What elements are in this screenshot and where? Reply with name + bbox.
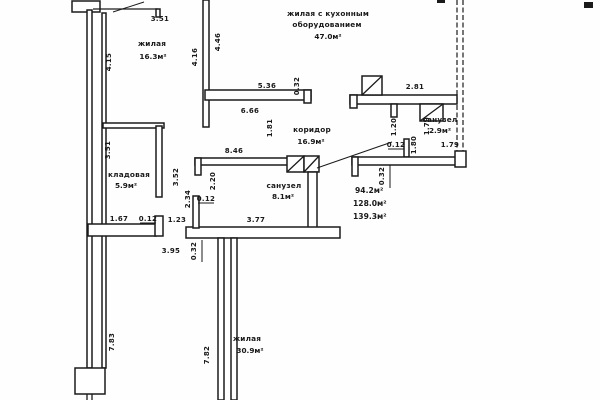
wall-stub — [391, 104, 397, 117]
door-vent-icon — [304, 156, 319, 172]
dim-179-v: 1.79 — [423, 117, 431, 135]
dim-181: 1.81 — [266, 119, 274, 137]
bottom-thick-wall — [186, 227, 340, 238]
vent-shaft-icon — [362, 76, 382, 95]
bath-small-bottom-wall — [352, 157, 456, 165]
room-label-living-top: жилая — [138, 39, 166, 48]
dim-012-bath-small: 0.12 — [387, 141, 405, 149]
floor-plan: жилая 16.3м² жилая с кухонным оборудован… — [0, 0, 600, 400]
outer-wall-left — [87, 10, 92, 368]
bath-large-right-wall — [308, 172, 317, 228]
dim-782: 7.82 — [203, 346, 211, 364]
summary-line-1: 94.2м² — [355, 186, 383, 195]
dim-012-bath-large: 0.12 — [197, 195, 215, 203]
dim-377: 3.77 — [247, 216, 265, 224]
wall-281-endcap — [350, 95, 357, 108]
summary-line-3: 139.3м² — [353, 212, 387, 221]
dim-032-bottom-left: 0.32 — [190, 242, 198, 260]
scan-mark — [584, 2, 593, 8]
room-area-living-bottom: 30.9м² — [236, 346, 263, 355]
dim-666: 6.66 — [241, 107, 259, 115]
dim-234: 2.34 — [184, 190, 192, 208]
room-area-living-kitchen: 47.0м² — [314, 32, 341, 41]
dim-783: 7.83 — [108, 333, 116, 351]
dim-416: 4.16 — [191, 48, 199, 66]
dim-012-storage: 0.12 — [139, 215, 157, 223]
room-label-bath-large: санузел — [267, 181, 302, 190]
partition-living-kitchen — [203, 0, 209, 127]
floor-plan-canvas: жилая 16.3м² жилая с кухонным оборудован… — [0, 0, 600, 400]
scan-mark — [437, 0, 445, 3]
wall-kitchen-bottom-endcap — [304, 90, 311, 103]
section-marker-top — [72, 1, 100, 12]
dim-446: 4.46 — [214, 33, 222, 51]
room-area-living-top: 16.3м² — [139, 52, 166, 61]
door-vent-icon — [287, 156, 304, 172]
room-area-bath-large: 8.1м² — [272, 192, 294, 201]
dim-352: 3.52 — [172, 168, 180, 186]
room-label-living-kitchen-1: жилая с кухонным — [287, 9, 369, 18]
section-marker-bottom — [75, 368, 105, 394]
dim-220: 2.20 — [209, 172, 217, 190]
dim-536: 5.36 — [258, 82, 276, 90]
dim-395: 3.95 — [162, 247, 180, 255]
living-bottom-right-wall — [218, 238, 224, 400]
dim-032-bottom-right: 0.32 — [378, 167, 386, 185]
bath-small-bottom-wall-stub — [352, 157, 358, 176]
room-label-living-bottom: жилая — [233, 334, 261, 343]
room-area-bath-small: 2.9м² — [429, 126, 451, 135]
bath-small-bottom-endcap — [455, 151, 466, 167]
dim-179-h: 1.79 — [441, 141, 459, 149]
dim-415: 4.15 — [105, 53, 113, 71]
dim-180: 1.80 — [410, 136, 418, 154]
hall-wall-left-return — [195, 158, 201, 175]
room-label-storage: кладовая — [108, 170, 150, 179]
storage-top-wall — [103, 123, 164, 128]
dim-351-left: 3.51 — [104, 141, 112, 159]
room-area-corridor: 16.9м² — [297, 137, 324, 146]
hall-wall-846 — [195, 158, 291, 165]
living-bottom-right-wall-face — [231, 238, 237, 400]
room-area-storage: 5.9м² — [115, 181, 137, 190]
dim-846: 8.46 — [225, 147, 243, 155]
wall-281 — [350, 95, 457, 104]
dim-167: 1.67 — [110, 215, 128, 223]
storage-right-wall — [156, 126, 162, 197]
dim-120: 1.20 — [390, 118, 398, 136]
dim-281: 2.81 — [406, 83, 424, 91]
dim-123: 1.23 — [168, 216, 186, 224]
summary-line-2: 128.0м² — [353, 199, 387, 208]
room-label-living-kitchen-2: оборудованием — [292, 20, 361, 29]
leader-line-top — [113, 2, 144, 12]
dim-032-top: 0.32 — [293, 77, 301, 95]
storage-bottom-wall — [88, 224, 156, 236]
dim-351-top: 3.51 — [151, 15, 169, 23]
room-label-corridor: коридор — [293, 125, 331, 134]
area-summary: 94.2м² 128.0м² 139.3м² — [353, 186, 387, 221]
